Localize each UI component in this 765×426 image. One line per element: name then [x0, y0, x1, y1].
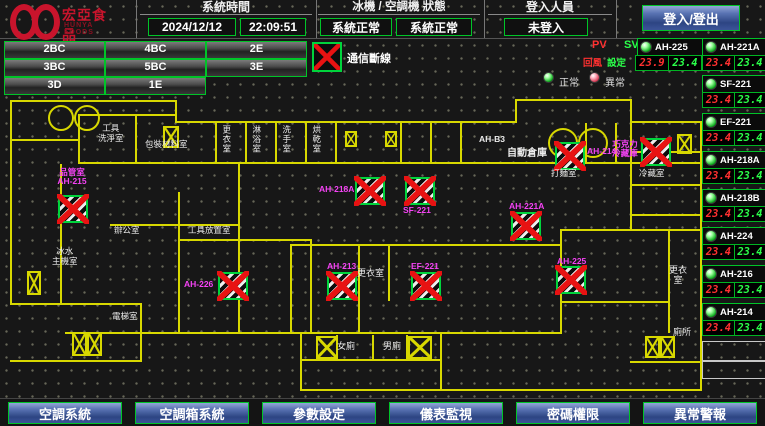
unit-name: AH-214	[720, 307, 753, 318]
pv-value-ah-216: 23.4	[702, 282, 735, 298]
logo-mark-icon	[32, 4, 60, 40]
pv-legend-label: PV	[592, 39, 607, 51]
floor-button-3d[interactable]: 3D	[4, 77, 105, 95]
pv-value-ah-218a: 23.4	[702, 168, 735, 184]
wall	[178, 192, 180, 334]
round-structure-icon	[48, 105, 74, 131]
stair-x-icon	[645, 336, 660, 358]
round-structure-icon	[74, 105, 100, 131]
ahu-device-offline-icon-ef-221[interactable]	[411, 272, 441, 300]
system-time-label: 系統時間	[140, 1, 312, 15]
unit-name: AH-218A	[720, 155, 760, 166]
status-lamp-icon	[640, 41, 652, 53]
nav-button-ahu-system[interactable]: 空調箱系統	[135, 402, 249, 424]
device-label-sf-221: SF-221	[403, 206, 431, 215]
status-lamp-icon	[705, 230, 717, 242]
sv-value-ah-218b: 23.4	[734, 206, 765, 222]
comm-offline-icon	[312, 42, 342, 72]
room-label-elevator: 電梯室	[112, 312, 138, 322]
sv-value-sf-221: 23.4	[734, 92, 765, 108]
company-logo: 宏亞食品 HUNYA FOODS	[4, 0, 114, 38]
wall	[630, 99, 632, 231]
wall	[175, 121, 517, 123]
wall	[300, 334, 302, 391]
wall	[65, 332, 562, 334]
ahu-device-offline-icon-ah-225[interactable]	[556, 266, 586, 294]
status-lamp-icon	[705, 116, 717, 128]
sv-value-ah-225: 23.4	[668, 55, 702, 71]
room-label-tool-storage: 工具放置室	[188, 226, 231, 236]
floor-button-3e[interactable]: 3E	[206, 59, 307, 77]
unit-button-ah-216[interactable]: AH-216	[702, 265, 765, 283]
stair-x-icon	[345, 131, 357, 147]
wall	[80, 162, 702, 164]
ahu-device-offline-icon-chocolate-store[interactable]	[641, 138, 671, 166]
pv-value-ah-218b: 23.4	[702, 206, 735, 222]
unit-name: AH-216	[720, 269, 753, 280]
sv-value-ah-214: 23.4	[734, 320, 765, 336]
chiller-status-value: 系統正常	[320, 18, 392, 36]
pv-value-ef-221: 23.4	[702, 130, 735, 146]
unit-name: AH-224	[720, 231, 753, 242]
normal-lamp-icon	[543, 72, 554, 83]
ahu-device-offline-icon-sf-221[interactable]	[405, 177, 435, 205]
ahu-device-offline-icon-ah-218a[interactable]	[355, 177, 385, 205]
device-label-ah-221a: AH-221A	[509, 202, 544, 211]
nav-button-meter-monitoring[interactable]: 儀表監視	[389, 402, 503, 424]
device-label-ah-225: AH-225	[557, 257, 586, 266]
stair-x-icon	[72, 332, 87, 356]
stair-x-icon	[316, 336, 338, 359]
wall	[310, 239, 312, 334]
normal-legend-label: 正常	[559, 74, 579, 89]
ahu-device-offline-icon-ah-226[interactable]	[218, 272, 248, 300]
pv-value-ah-221a: 23.4	[702, 55, 735, 71]
header-bar: 宏亞食品 HUNYA FOODS 系統時間 2024/12/12 22:09:5…	[0, 0, 765, 39]
room-label-shower: 淋浴室	[251, 125, 261, 154]
room-label-toilet-right: 廁所	[673, 327, 691, 337]
abnormal-legend-label: 異常	[605, 74, 625, 89]
pv-value-ah-224: 23.4	[702, 244, 735, 260]
wall	[290, 244, 562, 246]
wall	[10, 100, 176, 102]
wall	[275, 123, 277, 164]
nav-button-password-permission[interactable]: 密碼權限	[516, 402, 630, 424]
sv-value-ah-216: 23.4	[734, 282, 765, 298]
sv-value-ah-224: 23.4	[734, 244, 765, 260]
wall	[178, 239, 310, 241]
sv-value-ah-218a: 23.4	[734, 168, 765, 184]
floor-button-4bc[interactable]: 4BC	[105, 41, 206, 59]
status-lamp-icon	[705, 306, 717, 318]
room-label-packing-material: 包裝材料室	[145, 140, 188, 150]
wall	[460, 123, 462, 164]
wall	[388, 246, 390, 301]
wall	[630, 121, 702, 123]
wall	[10, 360, 142, 362]
unit-name: AH-221A	[720, 42, 760, 53]
login-logout-button[interactable]: 登入/登出	[642, 5, 740, 31]
status-lamp-icon	[705, 41, 717, 53]
floor-button-2e[interactable]: 2E	[206, 41, 307, 59]
nav-button-parameter-settings[interactable]: 參數設定	[262, 402, 376, 424]
wall	[335, 123, 337, 164]
status-lamp-icon	[705, 78, 717, 90]
wall	[215, 123, 217, 164]
room-label-tool-wash: 工具 洗淨室	[98, 124, 124, 144]
wall	[630, 214, 702, 216]
pv-type-label: 回風	[583, 55, 602, 69]
wall	[10, 139, 80, 141]
room-label-office: 辦公室	[114, 226, 140, 236]
sv-type-label: 設定	[607, 55, 626, 69]
stair-x-icon	[677, 134, 692, 154]
room-label-chiller-room: 冰水 主機室	[52, 247, 78, 267]
wall	[140, 303, 142, 362]
wall	[78, 114, 177, 116]
unit-name: AH-225	[655, 42, 688, 53]
stair-x-icon	[660, 336, 675, 358]
unit-button-ah-214[interactable]: AH-214	[702, 303, 765, 321]
wall	[515, 99, 632, 101]
wall	[238, 164, 240, 334]
unit-button-ef-221[interactable]: EF-221	[702, 113, 765, 131]
room-label-cold-storage: 冷藏室	[639, 169, 665, 179]
status-lamp-icon	[705, 268, 717, 280]
unit-name: AH-218B	[720, 193, 760, 204]
wall	[560, 301, 670, 303]
floor-button-3bc[interactable]: 3BC	[4, 59, 105, 77]
wall	[400, 123, 402, 164]
wall	[175, 100, 177, 123]
room-label-changing: 更衣室	[221, 125, 231, 154]
stair-x-icon	[408, 336, 432, 359]
device-label-chocolate-store: 巧克力 冷藏庫	[610, 140, 640, 159]
unit-button-ah-221a[interactable]: AH-221A	[702, 38, 765, 56]
ahu-device-offline-icon-ah-214[interactable]	[555, 142, 585, 170]
system-date-value: 2024/12/12	[148, 18, 236, 36]
status-lamp-icon	[705, 154, 717, 166]
wall	[300, 361, 302, 391]
unit-name: EF-221	[720, 117, 751, 128]
floor-button-5bc[interactable]: 5BC	[105, 59, 206, 77]
room-label-dough-room: 打麵室	[551, 169, 577, 179]
hmi-screen: 宏亞食品 HUNYA FOODS 系統時間 2024/12/12 22:09:5…	[0, 0, 765, 426]
wall	[430, 123, 432, 164]
bottom-nav-bar: 空調系統 空調箱系統 參數設定 儀表監視 密碼權限 異常警報	[0, 398, 765, 426]
wall	[515, 99, 517, 123]
floor-button-2bc[interactable]: 2BC	[4, 41, 105, 59]
abnormal-lamp-icon	[589, 72, 600, 83]
empty-slot	[702, 361, 765, 379]
wall	[78, 114, 80, 164]
wall	[406, 335, 408, 361]
room-label-women-toilet: 女廁	[337, 341, 355, 351]
device-label-ah-213: AH-213	[327, 262, 356, 271]
ahu-status-value: 系統正常	[396, 18, 472, 36]
wall	[10, 303, 142, 305]
device-label-ah-218a: AH-218A	[319, 185, 354, 194]
room-label-changing-right: 更衣 室	[669, 265, 687, 286]
unit-button-ah-218b[interactable]: AH-218B	[702, 189, 765, 207]
wall	[358, 246, 360, 334]
empty-slot	[702, 341, 765, 361]
pv-value-ah-214: 23.4	[702, 320, 735, 336]
wall	[372, 335, 374, 361]
sv-value-ah-221a: 23.4	[734, 55, 765, 71]
nav-button-abnormal-alarm[interactable]: 異常警報	[643, 402, 757, 424]
room-label-changing-center: 更衣室	[357, 268, 384, 278]
ahu-device-offline-icon-ah-221a[interactable]	[511, 212, 541, 240]
comm-offline-label: 通信斷線	[347, 50, 391, 66]
nav-button-ac-system[interactable]: 空調系統	[8, 402, 122, 424]
wall	[300, 389, 702, 391]
wall	[10, 100, 12, 305]
room-label-ah-b3: AH-B3	[479, 135, 505, 145]
machine-status-label: 冰機 / 空調機 狀態	[318, 1, 480, 15]
wall	[630, 184, 702, 186]
device-label-ah-215: 品管室 AH-215	[48, 168, 96, 187]
ahu-device-offline-icon-ah-215[interactable]	[58, 195, 88, 223]
floor-button-1e[interactable]: 1E	[105, 77, 206, 95]
ahu-device-offline-icon-ah-213[interactable]	[327, 272, 357, 300]
wall	[305, 123, 307, 164]
wall	[300, 359, 442, 361]
room-label-drying: 烘乾室	[311, 125, 321, 154]
unit-button-ah-225[interactable]: AH-225	[637, 38, 704, 56]
sv-value-ef-221: 23.4	[734, 130, 765, 146]
system-clock-value: 22:09:51	[240, 18, 306, 36]
room-label-men-toilet: 男廁	[383, 341, 401, 351]
login-user-label: 登入人員	[488, 1, 612, 15]
logo-text-en: HUNYA FOODS	[64, 22, 114, 36]
room-label-auto-warehouse: 自動倉庫	[507, 148, 547, 160]
unit-button-sf-221[interactable]: SF-221	[702, 75, 765, 93]
wall	[135, 114, 137, 164]
pv-value-sf-221: 23.4	[702, 92, 735, 108]
unit-name: SF-221	[720, 79, 751, 90]
unit-button-ah-224[interactable]: AH-224	[702, 227, 765, 245]
wall	[245, 123, 247, 164]
device-label-ef-221: EF-221	[411, 262, 439, 271]
wall	[630, 361, 702, 363]
stair-x-icon	[27, 271, 41, 295]
device-label-ah-226: AH-226	[184, 280, 213, 289]
stair-x-icon	[385, 131, 397, 147]
unit-button-ah-218a[interactable]: AH-218A	[702, 151, 765, 169]
wall	[290, 244, 292, 334]
pv-value-ah-225: 23.9	[635, 55, 669, 71]
wall	[440, 334, 442, 391]
room-label-washroom: 洗手室	[281, 125, 291, 154]
stair-x-icon	[87, 332, 102, 356]
wall	[560, 229, 702, 231]
login-user-value: 未登入	[504, 18, 588, 36]
status-lamp-icon	[705, 192, 717, 204]
